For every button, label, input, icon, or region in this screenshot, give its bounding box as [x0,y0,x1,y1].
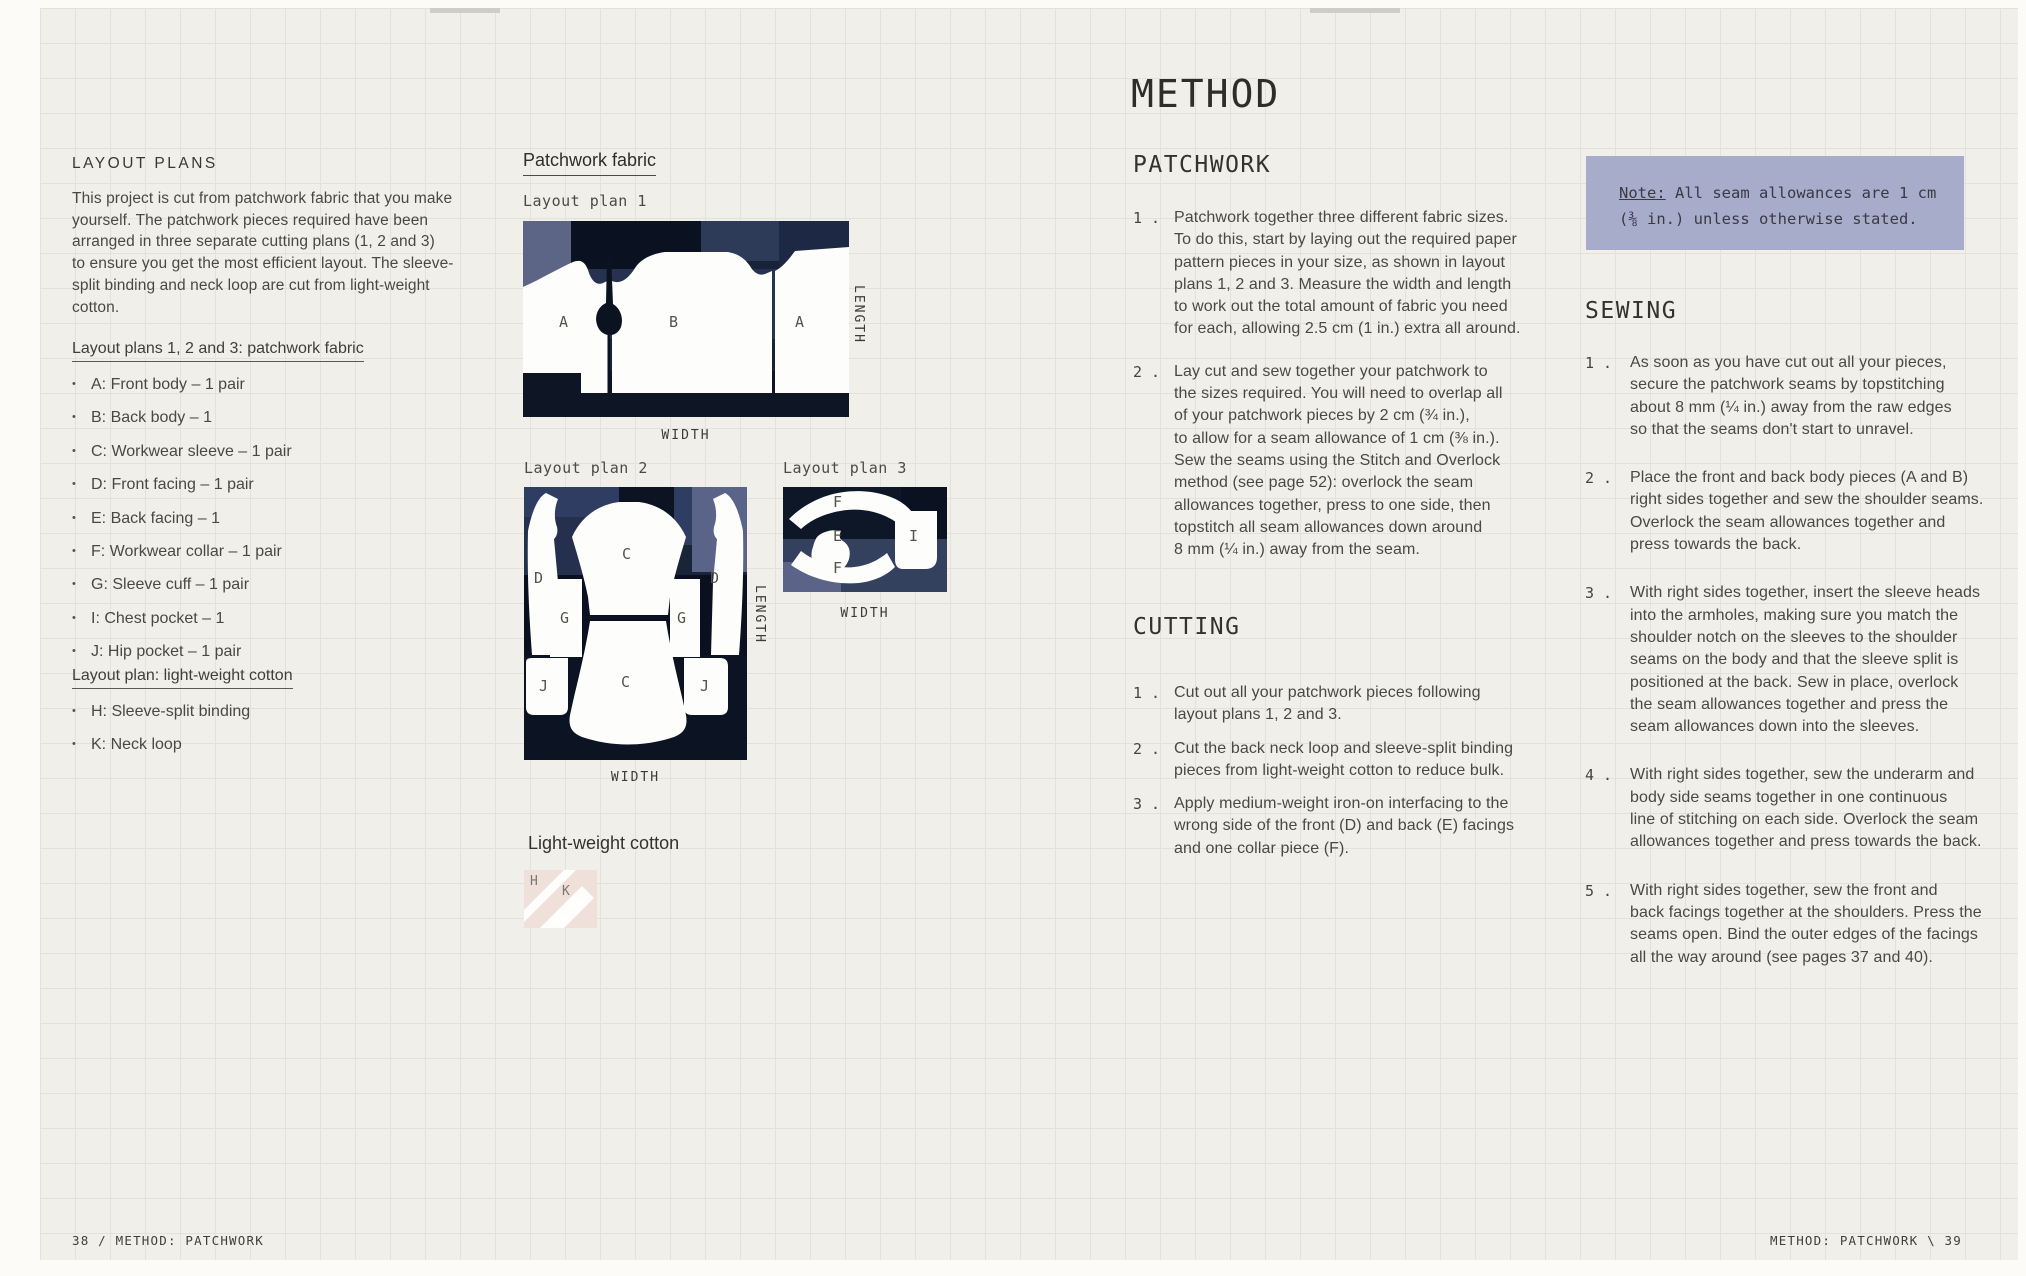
step-text: Cut out all your patchwork pieces follow… [1174,682,1481,727]
scan-artifact [1310,8,1400,13]
note-label: Note: [1619,184,1666,202]
list-item-label: B: Back body – 1 [91,407,212,429]
plan-1-width-label: WIDTH [523,428,849,443]
list-item: K: Neck loop [72,734,250,757]
list-item: D: Front facing – 1 pair [72,474,292,497]
note-body: All seam allowances are 1 cm (⅜ in.) unl… [1619,184,1936,228]
step-text: Place the front and back body pieces (A … [1630,467,1983,556]
step-text: Patchwork together three different fabri… [1174,207,1521,341]
step-text: With right sides together, insert the sl… [1630,582,1980,738]
patchwork-list-heading: Layout plans 1, 2 and 3: patchwork fabri… [72,340,364,362]
layout-plan-2-diagram: D C D G G J C J [524,487,747,760]
list-item: F: Workwear collar – 1 pair [72,541,292,564]
step-number: 2 . [1133,361,1174,562]
step-number: 1 . [1585,352,1630,441]
piece-letter: G [560,609,569,627]
cotton-list-heading: Layout plan: light-weight cotton [72,667,293,689]
plan-2-width-label: WIDTH [524,770,747,785]
plan-3-width-label: WIDTH [783,606,947,621]
method-title: METHOD [1131,72,1280,116]
piece-letter: K [562,884,570,899]
piece-letter: E [833,527,842,545]
step-number: 5 . [1585,880,1630,969]
list-item: B: Back body – 1 [72,407,292,430]
layout-plan-1-diagram: A B A [523,221,849,417]
list-item-label: A: Front body – 1 pair [91,374,245,396]
plan-2-length-label: LENGTH [752,585,767,644]
piece-letter: F [833,559,842,577]
step-number: 3 . [1133,793,1174,860]
list-item: J: Hip pocket – 1 pair [72,641,292,664]
sewing-steps: 1 . As soon as you have cut out all your… [1585,352,1983,969]
step-text: Lay cut and sew together your patchwork … [1174,361,1503,562]
piece-letter: B [669,313,678,331]
note-text: Note: All seam allowances are 1 cm (⅜ in… [1619,180,1952,232]
list-item-label: C: Workwear sleeve – 1 pair [91,441,292,463]
cutting-section-heading: CUTTING [1133,614,1240,640]
footer-right-page: METHOD: PATCHWORK \ 39 [1770,1233,1962,1248]
numbered-step: 2 . Cut the back neck loop and sleeve-sp… [1133,738,1514,783]
numbered-step: 4 . With right sides together, sew the u… [1585,764,1983,853]
piece-letter: C [622,545,631,563]
list-item: G: Sleeve cuff – 1 pair [72,574,292,597]
sewing-section-heading: SEWING [1585,298,1677,324]
plan-1-length-label: LENGTH [851,285,866,344]
list-item-label: D: Front facing – 1 pair [91,474,254,496]
numbered-step: 1 . Patchwork together three different f… [1133,207,1521,341]
step-text: As soon as you have cut out all your pie… [1630,352,1952,441]
seam-allowance-note: Note: All seam allowances are 1 cm (⅜ in… [1586,156,1964,250]
numbered-step: 2 . Lay cut and sew together your patchw… [1133,361,1521,562]
numbered-step: 1 . As soon as you have cut out all your… [1585,352,1983,441]
light-weight-cotton-label: Light-weight cotton [528,833,679,854]
list-item: A: Front body – 1 pair [72,374,292,397]
list-item: I: Chest pocket – 1 [72,608,292,631]
step-text: With right sides together, sew the under… [1630,764,1982,853]
piece-back-body [612,252,772,393]
numbered-step: 5 . With right sides together, sew the f… [1585,880,1983,969]
step-number: 2 . [1133,738,1174,783]
seam-line [608,331,611,393]
list-item: C: Workwear sleeve – 1 pair [72,441,292,464]
piece-letter: A [795,313,804,331]
list-item-label: H: Sleeve-split binding [91,701,250,723]
step-number: 1 . [1133,682,1174,727]
patchwork-section-heading: PATCHWORK [1133,152,1271,178]
layout-plan-3-label: Layout plan 3 [783,459,907,477]
piece-letter: F [833,493,842,511]
step-number: 1 . [1133,207,1174,341]
patchwork-steps: 1 . Patchwork together three different f… [1133,207,1521,561]
cutting-steps: 1 . Cut out all your patchwork pieces fo… [1133,682,1514,860]
step-number: 2 . [1585,467,1630,556]
piece-letter: A [559,313,568,331]
layout-plans-title: LAYOUT PLANS [72,155,218,173]
list-item-label: G: Sleeve cuff – 1 pair [91,574,249,596]
piece-letter: D [710,569,719,587]
piece-letter: J [700,677,709,695]
list-item: E: Back facing – 1 [72,508,292,531]
step-text: Cut the back neck loop and sleeve-split … [1174,738,1513,783]
list-item-label: K: Neck loop [91,734,182,756]
piece-letter: C [621,673,630,691]
footer-left-page: 38 / METHOD: PATCHWORK [72,1233,264,1248]
numbered-step: 2 . Place the front and back body pieces… [1585,467,1983,556]
step-number: 4 . [1585,764,1630,853]
patchwork-piece-list: A: Front body – 1 pair B: Back body – 1 … [72,374,292,675]
list-item-label: F: Workwear collar – 1 pair [91,541,282,563]
piece-front-body-right [775,247,849,393]
piece-letter: G [677,609,686,627]
step-text: Apply medium-weight iron-on interfacing … [1174,793,1514,860]
fabric-layout-illustration [524,487,747,760]
light-weight-cotton-swatch: H K [524,870,597,928]
layout-plan-2-label: Layout plan 2 [524,459,648,477]
list-item-label: J: Hip pocket – 1 pair [91,641,241,663]
layout-plan-3-diagram: F E F I [783,487,947,592]
numbered-step: 3 . Apply medium-weight iron-on interfac… [1133,793,1514,860]
layout-plan-1-label: Layout plan 1 [523,192,647,210]
book-spread: { "layout_plans": { "title": "LAYOUT PLA… [0,0,2026,1276]
list-item-label: E: Back facing – 1 [91,508,220,530]
seam-line [582,616,670,619]
fabric-layout-illustration [783,487,947,592]
scan-artifact [430,8,500,13]
step-text: With right sides together, sew the front… [1630,880,1982,969]
piece-letter: I [909,527,918,545]
cotton-piece-list: H: Sleeve-split binding K: Neck loop [72,701,250,768]
patchwork-fabric-heading: Patchwork fabric [523,150,656,176]
step-number: 3 . [1585,582,1630,738]
piece-letter: J [539,677,548,695]
piece-letter: D [534,569,543,587]
list-item: H: Sleeve-split binding [72,701,250,724]
list-item-label: I: Chest pocket – 1 [91,608,224,630]
layout-plans-intro: This project is cut from patchwork fabri… [72,188,454,318]
piece-letter: H [530,874,538,889]
numbered-step: 3 . With right sides together, insert th… [1585,582,1983,738]
numbered-step: 1 . Cut out all your patchwork pieces fo… [1133,682,1514,727]
